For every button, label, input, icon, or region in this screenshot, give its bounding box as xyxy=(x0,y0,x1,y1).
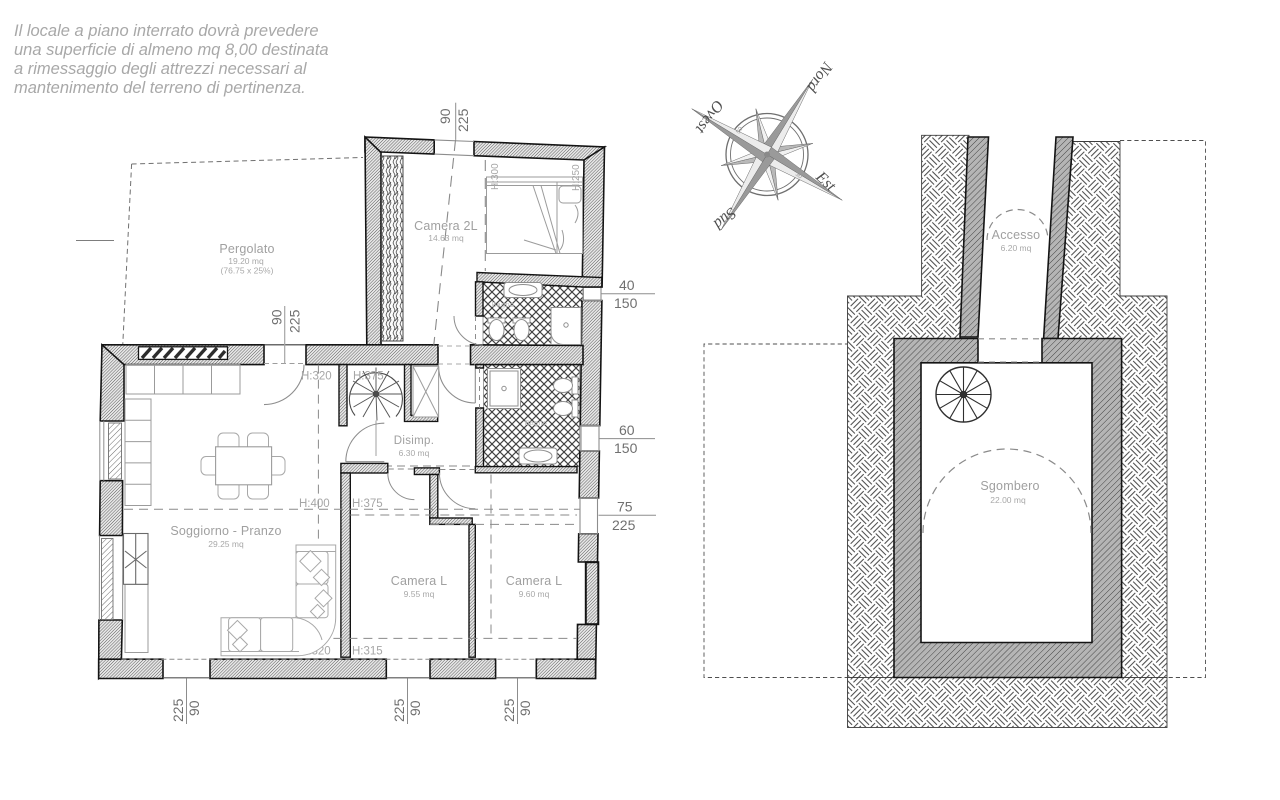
svg-text:mantenimento del terreno di pe: mantenimento del terreno di pertinenza. xyxy=(14,79,306,97)
svg-text:H:375: H:375 xyxy=(353,371,384,383)
svg-text:Pergolato: Pergolato xyxy=(219,242,274,256)
svg-text:225: 225 xyxy=(391,698,407,722)
svg-text:Camera 2L: Camera 2L xyxy=(414,219,478,233)
svg-text:una superficie di almeno mq 8,: una superficie di almeno mq 8,00 destina… xyxy=(14,41,329,59)
svg-text:40: 40 xyxy=(619,277,635,293)
svg-text:Disimp.: Disimp. xyxy=(394,435,434,447)
svg-text:Soggiorno - Pranzo: Soggiorno - Pranzo xyxy=(170,524,281,538)
svg-text:90: 90 xyxy=(269,309,285,325)
svg-text:Bagno: Bagno xyxy=(525,420,548,427)
svg-text:Sgombero: Sgombero xyxy=(980,479,1039,493)
svg-text:150: 150 xyxy=(614,295,638,311)
svg-text:a rimessaggio degli attrezzi n: a rimessaggio degli attrezzi necessari a… xyxy=(14,60,308,78)
svg-text:9.55 mq: 9.55 mq xyxy=(404,589,435,599)
svg-text:225: 225 xyxy=(287,309,303,333)
svg-text:H:375: H:375 xyxy=(352,498,383,510)
svg-text:(76.75 x 25%): (76.75 x 25%) xyxy=(221,266,274,276)
svg-text:150: 150 xyxy=(614,440,638,456)
svg-text:H:320: H:320 xyxy=(301,371,332,383)
svg-text:Camera L: Camera L xyxy=(506,574,562,588)
svg-text:225: 225 xyxy=(455,108,471,132)
svg-text:9.60 mq: 9.60 mq xyxy=(519,589,550,599)
svg-text:90: 90 xyxy=(407,700,423,716)
svg-text:Bagno: Bagno xyxy=(492,302,515,309)
svg-text:90: 90 xyxy=(517,700,533,716)
svg-text:Camera L: Camera L xyxy=(391,574,447,588)
svg-text:75: 75 xyxy=(617,499,633,515)
svg-text:22.00 mq: 22.00 mq xyxy=(990,495,1026,505)
svg-text:Il locale a piano interrato do: Il locale a piano interrato dovrà preved… xyxy=(14,22,319,40)
svg-text:90: 90 xyxy=(437,108,453,124)
svg-text:14.63 mq: 14.63 mq xyxy=(428,233,464,243)
svg-text:225: 225 xyxy=(612,517,636,533)
svg-text:225: 225 xyxy=(170,698,186,722)
svg-text:H:315: H:315 xyxy=(352,646,383,658)
svg-text:29.25 mq: 29.25 mq xyxy=(208,539,244,549)
svg-text:H:400: H:400 xyxy=(299,498,330,510)
svg-text:H:250: H:250 xyxy=(571,164,582,191)
svg-text:6.30 mq: 6.30 mq xyxy=(399,448,430,458)
svg-text:6.20 mq: 6.20 mq xyxy=(1001,243,1032,253)
svg-text:90: 90 xyxy=(186,700,202,716)
svg-text:225: 225 xyxy=(501,698,517,722)
svg-text:Accesso: Accesso xyxy=(992,228,1041,242)
svg-text:19.20 mq: 19.20 mq xyxy=(228,256,264,266)
svg-text:60: 60 xyxy=(619,422,635,438)
svg-text:H:300: H:300 xyxy=(490,163,501,190)
